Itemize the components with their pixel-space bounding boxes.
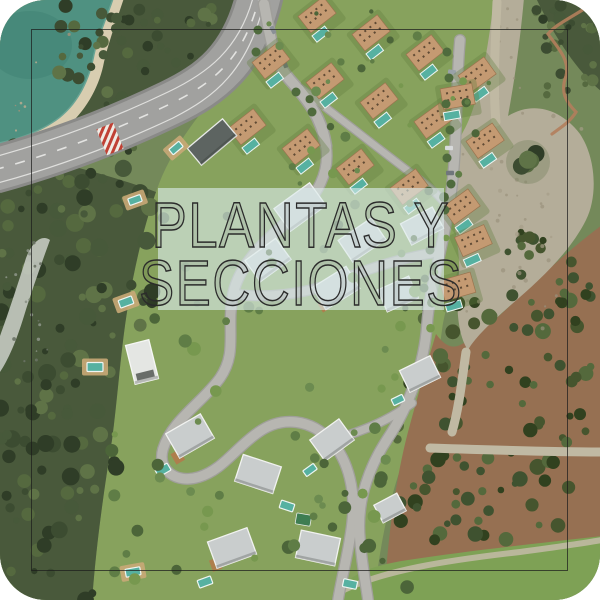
street-tree xyxy=(292,88,301,97)
tree xyxy=(519,225,523,229)
street-tree xyxy=(447,180,456,189)
tree xyxy=(522,324,534,336)
tree xyxy=(140,19,148,27)
tree xyxy=(400,580,414,594)
tree xyxy=(516,18,519,21)
tree xyxy=(68,20,80,32)
tree xyxy=(326,79,331,84)
tree xyxy=(453,453,462,462)
tree xyxy=(491,312,498,319)
tree xyxy=(75,515,82,522)
tree xyxy=(37,435,54,452)
tree xyxy=(354,168,360,174)
tree xyxy=(20,102,23,105)
tree xyxy=(291,431,301,441)
tree xyxy=(39,262,42,265)
tree xyxy=(587,363,595,371)
tree xyxy=(540,205,544,209)
tree xyxy=(327,123,334,130)
tree xyxy=(110,204,124,218)
tree xyxy=(22,488,29,495)
tree xyxy=(319,459,328,468)
tree xyxy=(143,41,154,52)
tree xyxy=(97,283,107,293)
tree xyxy=(426,324,435,333)
tree xyxy=(509,323,518,332)
tree xyxy=(582,427,590,435)
tree xyxy=(465,310,468,313)
tree xyxy=(62,175,75,188)
street-tree xyxy=(443,48,452,57)
tree xyxy=(462,153,465,156)
tree xyxy=(531,310,543,322)
tree xyxy=(171,58,181,68)
tree xyxy=(55,20,68,33)
tree xyxy=(37,466,46,475)
tree xyxy=(450,514,461,525)
tree xyxy=(46,349,48,351)
tree xyxy=(96,8,107,19)
tree xyxy=(164,48,170,54)
tree xyxy=(78,44,83,49)
tree xyxy=(370,59,375,64)
tree xyxy=(556,278,564,286)
tree xyxy=(171,565,181,575)
tree xyxy=(337,58,344,65)
tree xyxy=(93,427,108,442)
tree xyxy=(109,332,115,338)
tree xyxy=(506,7,509,10)
tree xyxy=(59,53,67,61)
tree xyxy=(306,95,314,103)
tree xyxy=(520,376,532,388)
tree xyxy=(585,282,593,290)
tree xyxy=(305,383,314,392)
tree xyxy=(80,210,87,217)
tree xyxy=(288,539,300,551)
tree xyxy=(61,408,72,419)
tree xyxy=(35,61,37,63)
tree xyxy=(206,22,211,27)
tree xyxy=(524,218,527,221)
tree xyxy=(512,285,516,289)
tree xyxy=(453,488,460,495)
tree xyxy=(550,8,556,14)
tree xyxy=(24,105,27,108)
tree xyxy=(54,254,65,265)
tree xyxy=(555,0,567,12)
car xyxy=(446,171,454,175)
tree xyxy=(517,242,525,250)
tree xyxy=(198,8,212,22)
tree xyxy=(99,50,108,59)
tree xyxy=(80,464,95,479)
tree xyxy=(516,270,526,280)
tree xyxy=(2,450,15,463)
tree xyxy=(519,87,521,89)
tree xyxy=(319,502,326,509)
tree xyxy=(328,522,337,531)
tree xyxy=(461,492,475,506)
tree xyxy=(521,112,524,115)
tree xyxy=(101,86,113,98)
tree xyxy=(202,506,213,517)
tree xyxy=(111,13,122,24)
tree xyxy=(510,56,513,59)
tree xyxy=(60,371,69,380)
tree xyxy=(587,23,598,34)
tree xyxy=(524,250,534,260)
tree xyxy=(132,525,144,537)
tree xyxy=(325,31,332,38)
tree xyxy=(369,9,373,13)
tree xyxy=(46,569,55,578)
tree xyxy=(98,174,107,183)
tree xyxy=(512,471,527,486)
tree xyxy=(108,459,124,475)
tree xyxy=(74,174,89,189)
tree xyxy=(123,550,131,558)
tree xyxy=(38,320,40,322)
tree xyxy=(50,220,67,237)
tree xyxy=(532,5,542,15)
tree xyxy=(468,317,480,329)
tree xyxy=(154,17,161,24)
tree xyxy=(28,252,31,255)
tree xyxy=(568,272,579,283)
tree xyxy=(536,522,543,529)
street-tree xyxy=(446,126,455,135)
tree xyxy=(550,236,552,238)
tree xyxy=(17,407,24,414)
tree xyxy=(547,456,560,469)
tree xyxy=(27,249,30,252)
tree xyxy=(35,359,38,362)
tree xyxy=(540,202,543,205)
tree xyxy=(48,412,56,420)
tree xyxy=(490,167,493,170)
tree xyxy=(562,481,575,494)
tree xyxy=(12,337,16,341)
tree xyxy=(328,169,338,179)
tree xyxy=(551,518,566,533)
tree xyxy=(15,129,17,131)
tree xyxy=(112,431,118,437)
tree xyxy=(251,555,258,562)
aerial-map: PLANTAS Y SECCIONES xyxy=(0,0,600,600)
tree xyxy=(541,326,545,330)
tree xyxy=(34,185,43,194)
tree xyxy=(133,4,145,16)
tree xyxy=(61,486,75,500)
tree xyxy=(105,444,118,457)
tree xyxy=(126,280,136,290)
tree xyxy=(52,66,66,80)
tree xyxy=(187,53,194,60)
tree xyxy=(381,455,391,465)
tree xyxy=(76,238,91,253)
car xyxy=(445,146,453,151)
tree xyxy=(310,513,318,521)
tree xyxy=(535,243,545,253)
tree xyxy=(342,490,349,497)
tree xyxy=(590,76,596,82)
tree xyxy=(152,459,164,471)
tree xyxy=(498,214,501,217)
tree xyxy=(555,294,558,297)
tree xyxy=(179,334,192,347)
tree xyxy=(358,489,368,499)
tree xyxy=(501,268,505,272)
tree xyxy=(289,163,296,170)
tree xyxy=(558,39,564,45)
tree xyxy=(496,219,500,223)
tree xyxy=(215,491,224,500)
tree xyxy=(413,31,422,40)
tree xyxy=(157,43,164,50)
tree xyxy=(68,33,71,36)
tree xyxy=(13,517,19,523)
tree xyxy=(37,203,48,214)
tree xyxy=(108,489,120,501)
tree xyxy=(459,77,467,85)
tree xyxy=(0,199,15,214)
tree xyxy=(407,123,412,128)
tree xyxy=(14,273,17,276)
tree xyxy=(93,42,101,50)
tree xyxy=(555,360,566,371)
tree xyxy=(455,171,462,178)
tree xyxy=(362,539,376,553)
pool xyxy=(82,359,108,376)
tree xyxy=(498,487,505,494)
tree xyxy=(540,244,544,248)
tree xyxy=(499,532,514,547)
tree xyxy=(311,86,321,96)
tree xyxy=(465,99,470,104)
tree xyxy=(62,468,80,486)
tree xyxy=(433,348,448,363)
tree xyxy=(478,487,486,495)
tree xyxy=(570,316,580,326)
tree xyxy=(561,437,572,448)
tree xyxy=(90,485,99,494)
tree xyxy=(544,353,553,362)
tree xyxy=(580,127,584,131)
tree xyxy=(39,388,53,402)
tree xyxy=(399,83,404,88)
tree xyxy=(445,324,460,339)
tree xyxy=(152,30,163,41)
title-line-2: SECCIONES xyxy=(139,248,463,319)
tree xyxy=(79,294,86,301)
site-plan-image: PLANTAS Y SECCIONES xyxy=(0,0,600,600)
tree xyxy=(134,319,147,332)
tree xyxy=(28,489,39,500)
tree xyxy=(2,220,13,231)
street-tree xyxy=(308,108,317,117)
street-tree xyxy=(252,48,261,57)
tree xyxy=(41,379,52,390)
tree xyxy=(410,482,417,489)
tree xyxy=(56,324,65,333)
tree xyxy=(38,323,41,326)
tree xyxy=(79,308,96,325)
tree xyxy=(60,352,75,367)
tree xyxy=(505,366,513,374)
tree xyxy=(36,350,38,352)
tree xyxy=(447,376,458,387)
tree xyxy=(141,67,149,75)
tree xyxy=(77,487,84,494)
tree xyxy=(534,416,545,427)
tree xyxy=(76,189,93,206)
tree xyxy=(530,381,538,389)
tree xyxy=(71,379,80,388)
tree xyxy=(525,498,538,511)
tree xyxy=(369,422,381,434)
tree xyxy=(310,453,320,463)
tree xyxy=(547,193,550,196)
tree xyxy=(539,474,551,486)
tree xyxy=(98,305,106,313)
tree xyxy=(505,194,508,197)
tree xyxy=(551,114,555,118)
tree xyxy=(391,373,399,381)
street-tree xyxy=(442,100,451,109)
tree xyxy=(544,305,546,307)
tree xyxy=(17,474,31,488)
tree xyxy=(535,323,551,339)
tree xyxy=(18,206,25,213)
tree xyxy=(395,321,406,332)
tree xyxy=(275,42,283,50)
tree xyxy=(56,385,65,394)
tree xyxy=(543,91,550,98)
tree xyxy=(482,351,490,359)
tree xyxy=(474,517,482,525)
tree xyxy=(547,258,551,262)
tree xyxy=(65,255,81,271)
tree xyxy=(155,472,165,482)
tree xyxy=(186,18,195,27)
tree xyxy=(200,523,208,531)
tree xyxy=(505,249,512,256)
tree xyxy=(378,385,386,393)
tree xyxy=(314,11,318,15)
tree xyxy=(476,467,485,476)
tree xyxy=(18,110,20,112)
street-tree xyxy=(443,154,452,163)
tree xyxy=(538,15,547,24)
tree xyxy=(195,418,202,425)
tree xyxy=(472,129,480,137)
tree xyxy=(64,500,78,514)
tree xyxy=(450,96,455,101)
tree xyxy=(91,239,109,257)
tree xyxy=(6,567,16,577)
tree xyxy=(368,510,381,523)
tree xyxy=(379,558,385,564)
tree xyxy=(26,442,40,456)
tree xyxy=(58,205,66,213)
tree xyxy=(581,23,586,28)
tree xyxy=(544,309,555,320)
tree xyxy=(524,231,536,243)
tree xyxy=(314,495,323,504)
tree xyxy=(37,338,40,341)
tree xyxy=(351,429,358,436)
tree xyxy=(483,505,494,516)
tree xyxy=(28,299,30,301)
tree xyxy=(2,491,12,501)
tree xyxy=(500,160,504,164)
tree xyxy=(210,385,222,397)
tree xyxy=(523,423,537,437)
tree xyxy=(357,64,365,72)
tree xyxy=(298,181,303,186)
tree xyxy=(419,484,430,495)
tree xyxy=(515,232,520,237)
tree xyxy=(555,297,563,305)
tree xyxy=(460,461,470,471)
tree xyxy=(468,526,483,541)
tree xyxy=(387,36,394,43)
tree xyxy=(23,360,25,362)
street-tree xyxy=(445,74,454,83)
tree xyxy=(266,21,271,26)
tree xyxy=(21,508,34,521)
tree xyxy=(31,568,37,574)
tree xyxy=(430,452,445,467)
tree xyxy=(77,53,83,59)
tree xyxy=(583,44,593,54)
tree xyxy=(581,289,592,300)
tree xyxy=(63,436,80,453)
tree xyxy=(451,500,460,509)
tree xyxy=(116,180,124,188)
tree xyxy=(37,538,52,553)
tree xyxy=(2,561,8,567)
tree xyxy=(429,534,440,545)
tree xyxy=(517,271,521,275)
tree xyxy=(422,471,435,484)
tree xyxy=(528,299,535,306)
tree xyxy=(15,378,21,384)
tree xyxy=(539,237,546,244)
tree xyxy=(382,346,389,353)
tree xyxy=(589,61,597,69)
title-overlay: PLANTAS Y SECCIONES xyxy=(139,188,463,319)
tree xyxy=(22,371,34,383)
tree xyxy=(307,146,315,154)
tree xyxy=(25,301,28,304)
tree xyxy=(5,503,14,512)
tree xyxy=(129,573,141,585)
tree xyxy=(15,105,17,107)
tree xyxy=(506,289,518,301)
tree xyxy=(109,566,120,577)
tree xyxy=(593,21,600,28)
tree xyxy=(87,63,95,71)
tree xyxy=(340,132,350,142)
tree xyxy=(516,195,518,197)
tree xyxy=(90,403,106,419)
tree xyxy=(518,266,521,269)
tree xyxy=(519,400,526,407)
tree xyxy=(122,47,133,58)
tree xyxy=(3,282,12,291)
